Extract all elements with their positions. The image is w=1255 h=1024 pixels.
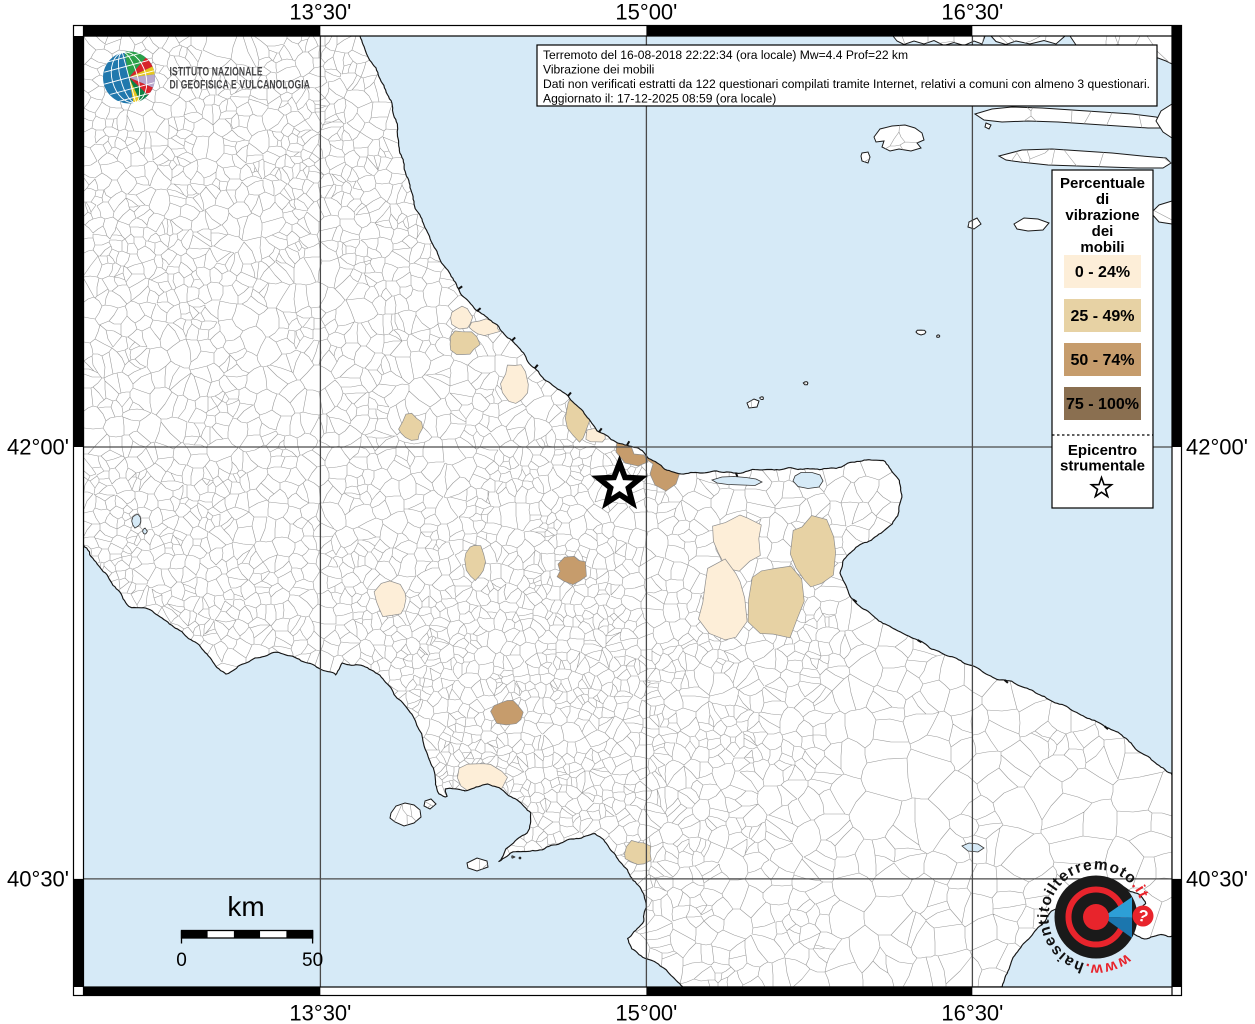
- svg-text:Epicentro: Epicentro: [1068, 442, 1137, 459]
- svg-text:Vibrazione dei mobili: Vibrazione dei mobili: [543, 63, 654, 77]
- svg-text:km: km: [227, 891, 264, 922]
- svg-text:42°00': 42°00': [7, 435, 69, 460]
- svg-text:15°00': 15°00': [615, 0, 677, 25]
- svg-text:13°30': 13°30': [289, 1001, 351, 1024]
- svg-text:50: 50: [302, 950, 323, 971]
- svg-text:15°00': 15°00': [615, 1001, 677, 1024]
- svg-text:40°30': 40°30': [1186, 866, 1248, 891]
- svg-text:13°30': 13°30': [289, 0, 351, 25]
- svg-text:ISTITUTO NAZIONALE: ISTITUTO NAZIONALE: [170, 66, 263, 79]
- svg-text:42°00': 42°00': [1186, 435, 1248, 460]
- svg-text:strumentale: strumentale: [1060, 458, 1145, 475]
- svg-text:Dati non verificati estratti d: Dati non verificati estratti da 122 ques…: [543, 77, 1150, 91]
- svg-text:vibrazione: vibrazione: [1065, 207, 1139, 224]
- svg-text:0: 0: [176, 950, 187, 971]
- svg-text:16°30': 16°30': [941, 1001, 1003, 1024]
- svg-text:DI GEOFISICA E VULCANOLOGIA: DI GEOFISICA E VULCANOLOGIA: [170, 79, 311, 92]
- svg-text:di: di: [1096, 191, 1109, 208]
- svg-text:40°30': 40°30': [7, 866, 69, 891]
- svg-text:75 - 100%: 75 - 100%: [1066, 396, 1139, 413]
- svg-text:25 - 49%: 25 - 49%: [1070, 308, 1134, 325]
- svg-text:dei: dei: [1092, 223, 1114, 240]
- svg-text:mobili: mobili: [1080, 239, 1124, 256]
- svg-text:50 - 74%: 50 - 74%: [1070, 352, 1134, 369]
- svg-text:Percentuale: Percentuale: [1060, 175, 1145, 192]
- svg-text:0 - 24%: 0 - 24%: [1075, 264, 1130, 281]
- svg-text:Aggiornato il: 17-12-2025 08:5: Aggiornato il: 17-12-2025 08:59 (ora loc…: [543, 92, 776, 106]
- svg-text:Terremoto del 16-08-2018 22:22: Terremoto del 16-08-2018 22:22:34 (ora l…: [543, 48, 908, 62]
- svg-text:16°30': 16°30': [941, 0, 1003, 25]
